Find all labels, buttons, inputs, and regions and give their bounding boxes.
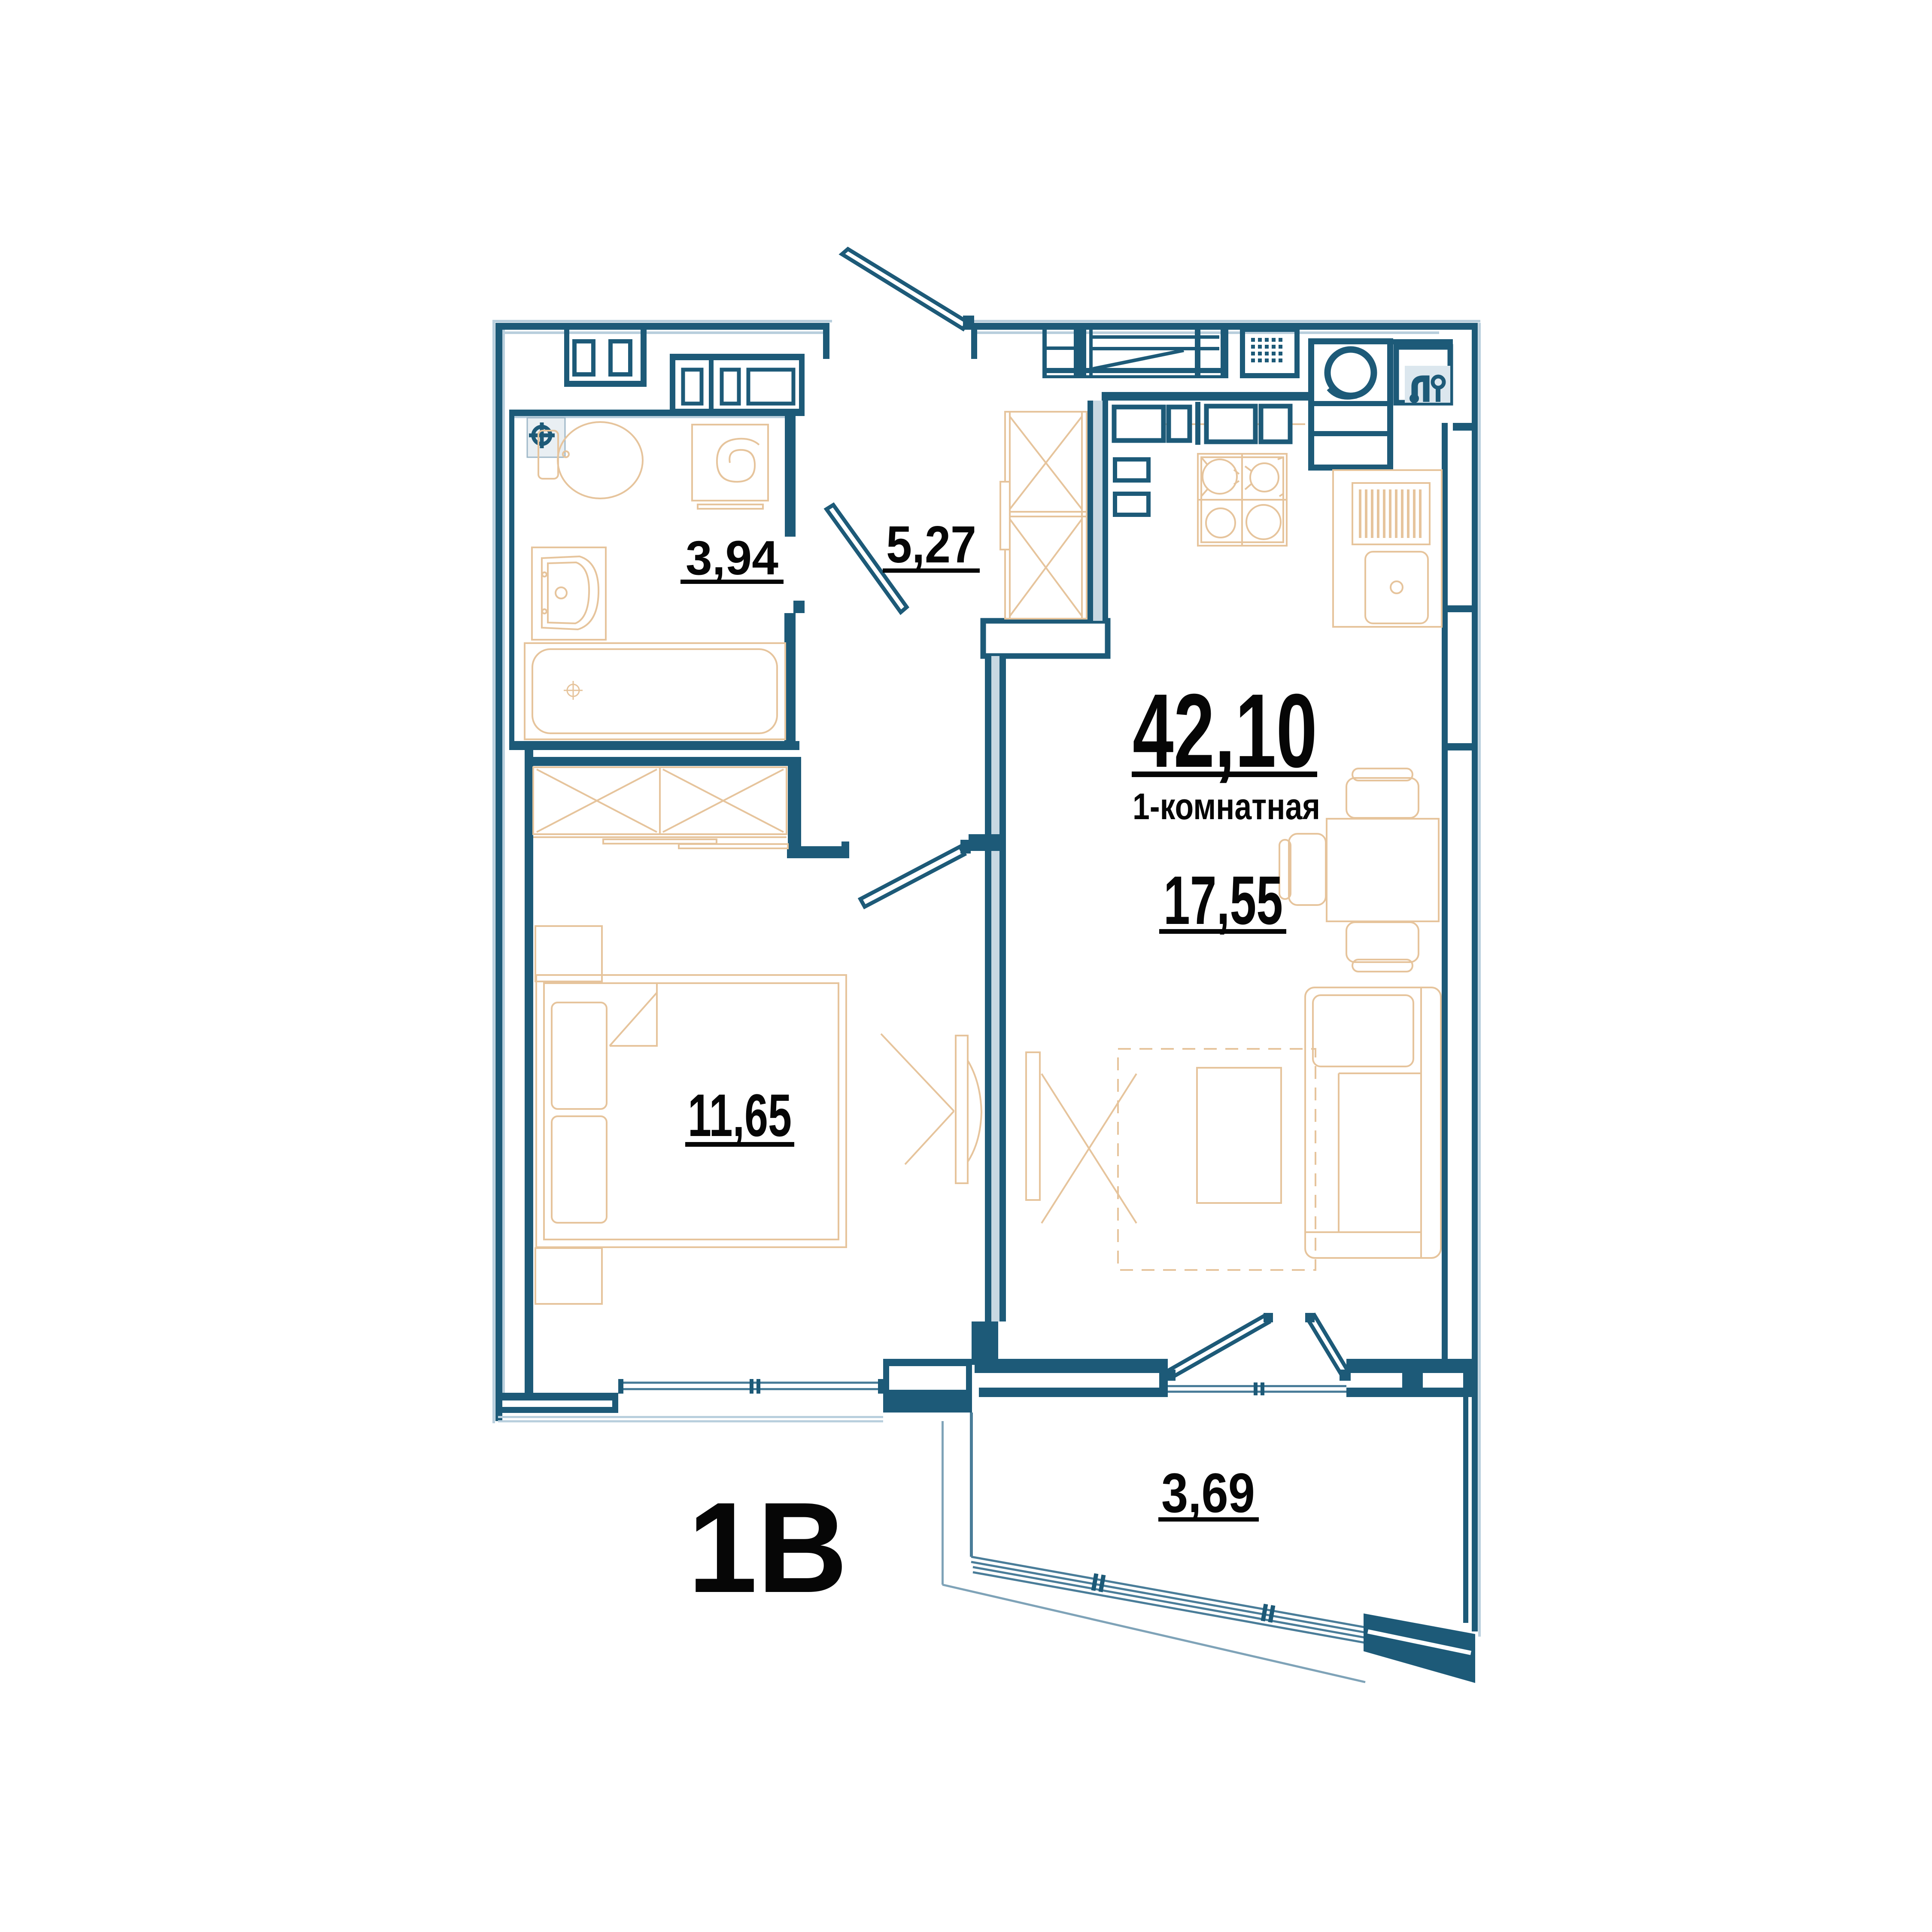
svg-text:1-комнатная: 1-комнатная xyxy=(1133,786,1320,827)
svg-text:1В: 1В xyxy=(688,1475,848,1619)
svg-text:11,65: 11,65 xyxy=(688,1081,792,1149)
svg-text:3,94: 3,94 xyxy=(686,531,778,585)
svg-text:5,27: 5,27 xyxy=(886,515,976,574)
svg-text:3,69: 3,69 xyxy=(1161,1461,1255,1524)
svg-text:17,55: 17,55 xyxy=(1163,862,1283,939)
